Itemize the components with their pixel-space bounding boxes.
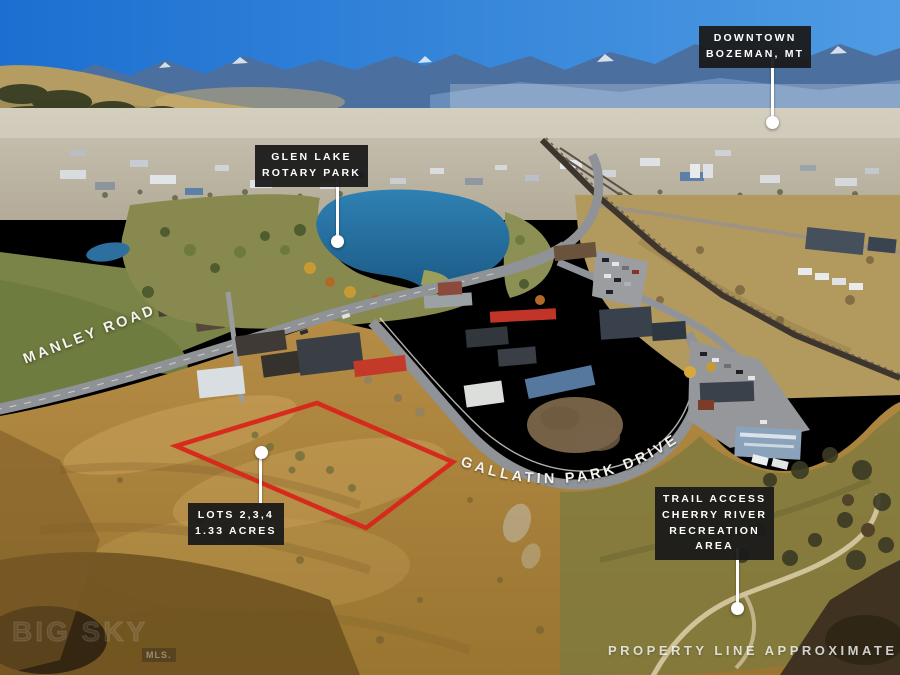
- trail-callout: TRAIL ACCESS CHERRY RIVER RECREATION ARE…: [655, 487, 774, 560]
- lots-line1: LOTS 2,3,4: [195, 508, 277, 524]
- trail-callout-dot: [731, 602, 744, 615]
- lots-line2: 1.33 ACRES: [195, 524, 277, 540]
- downtown-line2: BOZEMAN, MT: [706, 47, 804, 63]
- lots-callout: LOTS 2,3,4 1.33 ACRES: [188, 503, 284, 545]
- aerial-scene: GALLATIN PARK DRIVE: [0, 0, 900, 675]
- trail-line3: RECREATION: [662, 524, 767, 540]
- downtown-line1: DOWNTOWN: [706, 31, 804, 47]
- mls-watermark: BIG SKY MLS.: [12, 616, 148, 648]
- glen-lake-callout-dot: [331, 235, 344, 248]
- trail-line4: AREA: [662, 539, 767, 555]
- trail-line1: TRAIL ACCESS: [662, 492, 767, 508]
- aerial-listing-photo: GALLATIN PARK DRIVE MANLEY ROAD DOWNTOWN…: [0, 0, 900, 675]
- glen-lake-callout: GLEN LAKE ROTARY PARK: [255, 145, 368, 187]
- glen-lake-callout-line: [336, 180, 339, 236]
- watermark-mls-badge: MLS.: [142, 648, 176, 662]
- downtown-callout: DOWNTOWN BOZEMAN, MT: [699, 26, 811, 68]
- watermark-text: BIG SKY: [12, 616, 148, 648]
- property-line-note: PROPERTY LINE APPROXIMATE: [608, 643, 898, 658]
- lots-callout-line: [259, 458, 262, 504]
- trail-line2: CHERRY RIVER: [662, 508, 767, 524]
- lots-callout-dot: [255, 446, 268, 459]
- glen-lake-line1: GLEN LAKE: [262, 150, 361, 166]
- glen-lake-line2: ROTARY PARK: [262, 166, 361, 182]
- downtown-callout-dot: [766, 116, 779, 129]
